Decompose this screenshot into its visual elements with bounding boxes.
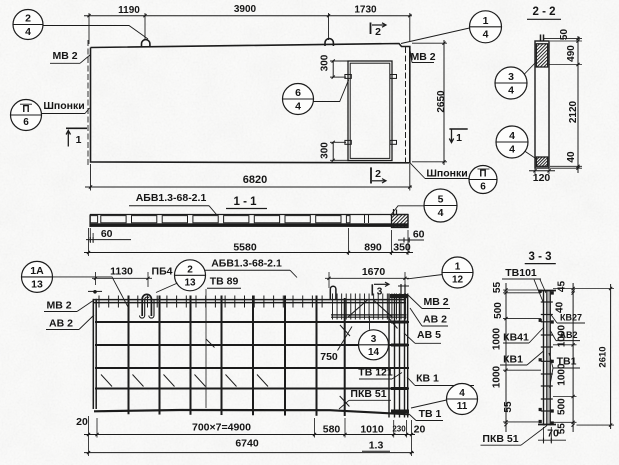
svg-text:П: П [479,169,486,180]
svg-text:МВ 2: МВ 2 [46,300,71,312]
svg-text:ПКВ 51: ПКВ 51 [482,433,518,445]
svg-text:6: 6 [480,182,486,193]
svg-text:КВ27: КВ27 [560,313,582,323]
svg-text:2610: 2610 [598,346,609,367]
svg-text:120: 120 [533,172,551,184]
svg-text:490: 490 [566,45,577,62]
svg-text:40: 40 [555,301,566,313]
svg-text:2: 2 [187,264,193,275]
svg-text:1000: 1000 [492,327,503,350]
svg-text:ТВ1: ТВ1 [557,356,577,368]
svg-text:3900: 3900 [234,4,257,15]
svg-text:4: 4 [438,207,444,219]
svg-text:2650: 2650 [436,90,447,113]
svg-text:70: 70 [547,428,559,440]
svg-text:6740: 6740 [235,438,259,450]
svg-text:ТВ 89: ТВ 89 [210,276,239,288]
svg-text:890: 890 [364,242,382,254]
svg-text:1 - 1: 1 - 1 [233,196,257,208]
svg-text:1А: 1А [30,265,44,277]
svg-text:1010: 1010 [360,423,384,435]
svg-text:2: 2 [375,26,381,38]
svg-text:20: 20 [76,416,88,428]
svg-text:350: 350 [393,242,411,254]
svg-text:ТВ 121: ТВ 121 [358,367,393,379]
svg-text:1: 1 [456,132,462,144]
svg-text:700×7=4900: 700×7=4900 [192,422,251,434]
svg-text:750: 750 [320,351,338,363]
svg-text:5580: 5580 [233,242,257,254]
svg-text:АБВ1.3-68-2.1: АБВ1.3-68-2.1 [211,258,282,270]
svg-text:КВ41: КВ41 [503,331,529,343]
svg-text:3: 3 [377,287,383,298]
svg-text:2: 2 [375,168,381,180]
svg-text:40: 40 [566,151,577,163]
svg-text:230: 230 [392,425,406,434]
svg-text:АВ 2: АВ 2 [49,318,73,330]
svg-text:12: 12 [452,275,464,286]
svg-text:4: 4 [25,26,31,38]
svg-text:6820: 6820 [243,174,267,186]
svg-text:АБВ1.3-68-2.1: АБВ1.3-68-2.1 [136,192,207,204]
svg-text:ТВ101: ТВ101 [505,267,537,279]
svg-text:АВ2: АВ2 [559,330,577,340]
svg-text:3: 3 [508,71,514,83]
svg-text:60: 60 [101,228,113,240]
svg-text:АВ 5: АВ 5 [417,329,441,341]
svg-text:300: 300 [320,142,331,159]
svg-text:4: 4 [295,101,301,113]
svg-text:6: 6 [23,117,29,128]
svg-text:60: 60 [413,229,425,241]
svg-text:6: 6 [295,87,301,99]
svg-text:5: 5 [438,194,444,206]
svg-text:11: 11 [457,401,468,412]
svg-text:АВ 2: АВ 2 [423,314,447,326]
svg-text:500: 500 [557,398,568,415]
svg-text:500: 500 [493,302,504,319]
svg-text:4: 4 [459,388,465,399]
svg-text:1: 1 [76,134,82,146]
svg-text:50: 50 [559,29,570,41]
svg-text:4: 4 [509,130,515,142]
svg-text:14: 14 [368,347,380,358]
svg-text:4: 4 [509,144,515,156]
svg-text:Шпонки: Шпонки [43,100,84,112]
svg-text:55: 55 [503,401,514,413]
svg-text:1730: 1730 [354,5,377,16]
svg-text:580: 580 [323,423,341,435]
svg-text:3: 3 [371,334,377,345]
svg-text:4: 4 [508,85,514,97]
svg-text:2: 2 [25,13,31,25]
svg-text:Шпонки: Шпонки [426,168,467,180]
svg-text:МВ 2: МВ 2 [410,51,435,63]
svg-text:КВ 1: КВ 1 [416,373,439,385]
svg-text:2 - 2: 2 - 2 [532,6,555,18]
svg-text:КВ1: КВ1 [503,353,523,365]
svg-text:13: 13 [184,277,196,288]
svg-text:2120: 2120 [568,100,579,123]
svg-text:1190: 1190 [118,5,140,16]
svg-text:13: 13 [31,278,43,290]
svg-text:ПБ4: ПБ4 [152,266,173,278]
svg-text:300: 300 [320,54,331,71]
svg-text:МВ 2: МВ 2 [423,296,448,308]
svg-text:1: 1 [455,262,461,273]
svg-text:1670: 1670 [362,266,386,278]
svg-text:1000: 1000 [492,365,503,388]
svg-text:П: П [22,104,29,115]
svg-text:1130: 1130 [110,266,133,278]
svg-text:55: 55 [492,282,503,294]
svg-text:45: 45 [557,281,568,293]
svg-text:3 - 3: 3 - 3 [528,251,551,263]
svg-text:МВ 2: МВ 2 [52,50,77,62]
svg-text:ТВ 1: ТВ 1 [419,408,442,420]
svg-text:4: 4 [483,28,489,40]
svg-text:ПКВ 51: ПКВ 51 [350,388,386,400]
svg-text:1: 1 [483,15,489,27]
svg-text:20: 20 [414,423,426,435]
svg-text:1.3: 1.3 [369,440,384,452]
